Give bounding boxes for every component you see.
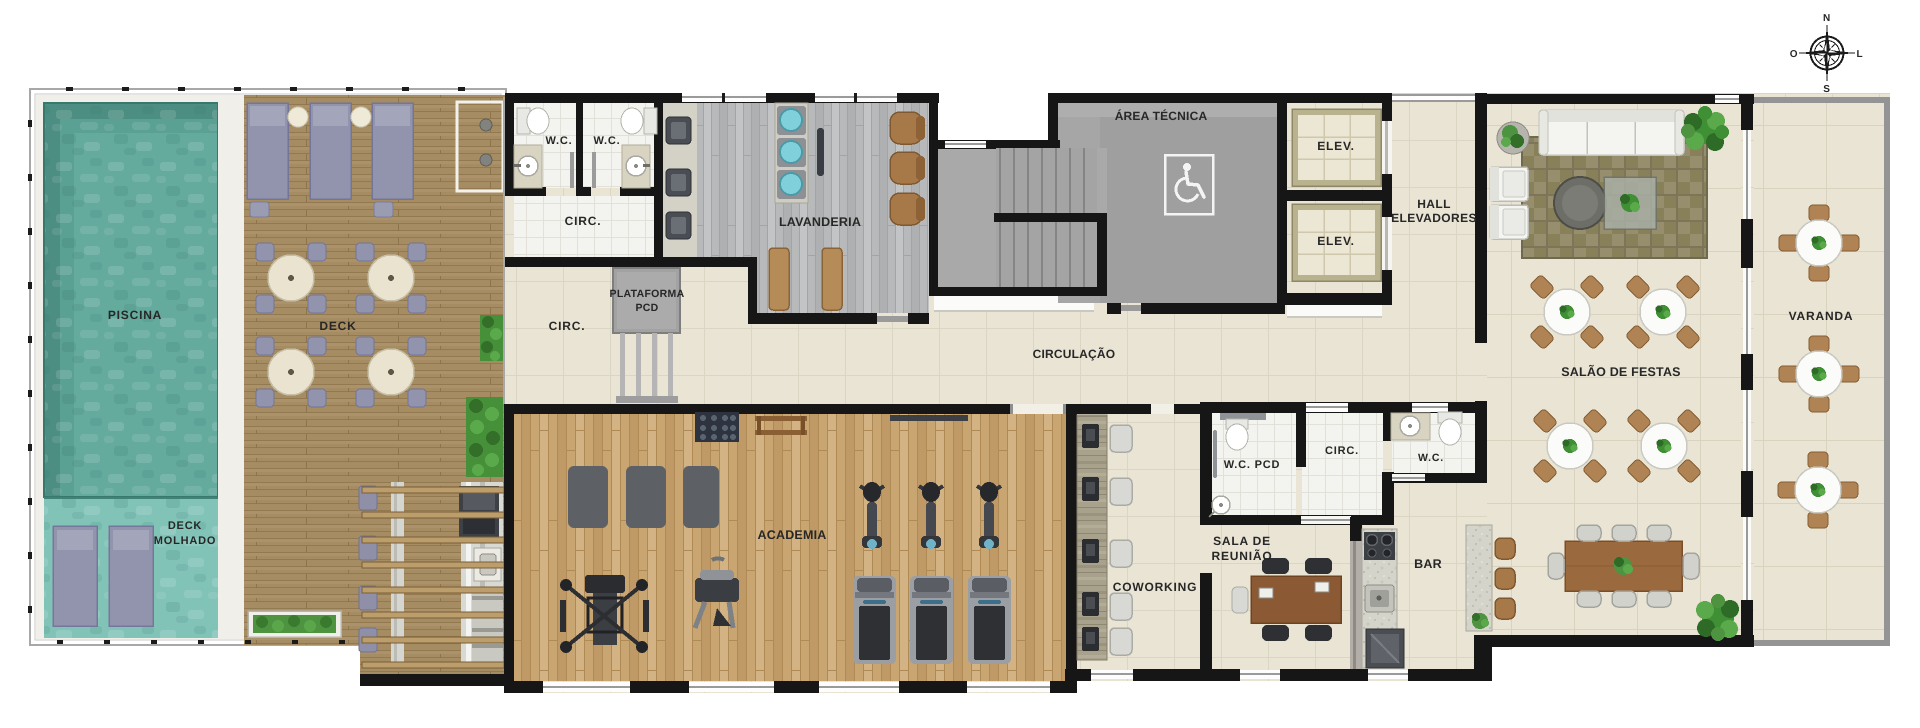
svg-text:PLATAFORMA: PLATAFORMA [610, 288, 685, 300]
svg-text:BAR: BAR [1414, 557, 1442, 571]
svg-text:CIRC.: CIRC. [549, 319, 586, 333]
svg-text:DECK: DECK [319, 319, 356, 333]
svg-text:REUNIÃO: REUNIÃO [1212, 549, 1273, 563]
svg-text:L: L [1857, 49, 1864, 60]
svg-text:HALL: HALL [1417, 197, 1451, 211]
svg-text:MOLHADO: MOLHADO [154, 535, 216, 547]
svg-text:VARANDA: VARANDA [1789, 309, 1854, 323]
svg-text:CIRCULAÇÃO: CIRCULAÇÃO [1033, 347, 1116, 361]
svg-text:LAVANDERIA: LAVANDERIA [779, 215, 861, 229]
svg-text:DECK: DECK [168, 520, 202, 532]
svg-text:ELEV.: ELEV. [1317, 234, 1355, 248]
svg-text:SALA DE: SALA DE [1213, 534, 1271, 548]
svg-text:SALÃO DE FESTAS: SALÃO DE FESTAS [1561, 364, 1680, 379]
svg-text:ACADEMIA: ACADEMIA [758, 528, 827, 542]
svg-text:O: O [1790, 49, 1799, 60]
svg-text:PCD: PCD [635, 302, 658, 314]
svg-text:PISCINA: PISCINA [108, 308, 162, 322]
svg-text:COWORKING: COWORKING [1113, 580, 1198, 594]
svg-text:S: S [1823, 84, 1830, 95]
svg-text:W.C.: W.C. [593, 135, 620, 147]
svg-text:N: N [1823, 13, 1831, 24]
svg-text:W.C. PCD: W.C. PCD [1224, 459, 1281, 471]
svg-text:ELEV.: ELEV. [1317, 139, 1355, 153]
svg-text:ELEVADORES: ELEVADORES [1391, 211, 1477, 225]
svg-text:CIRC.: CIRC. [1325, 445, 1359, 457]
svg-text:CIRC.: CIRC. [565, 214, 602, 228]
svg-text:ÁREA TÉCNICA: ÁREA TÉCNICA [1115, 109, 1208, 123]
svg-text:W.C.: W.C. [1418, 452, 1444, 464]
svg-text:W.C.: W.C. [545, 135, 572, 147]
